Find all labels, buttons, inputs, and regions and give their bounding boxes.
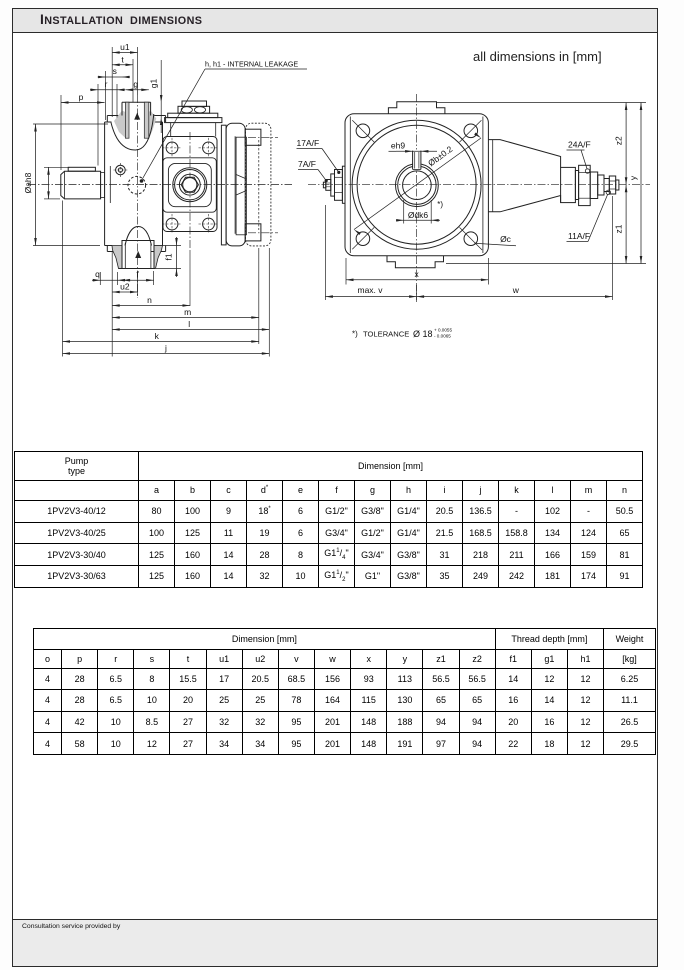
- svg-text:j: j: [164, 343, 167, 353]
- svg-text:z2: z2: [614, 136, 624, 145]
- svg-text:Øc: Øc: [500, 234, 512, 244]
- svg-text:s: s: [113, 66, 117, 76]
- svg-text:Ødk6: Ødk6: [408, 210, 429, 220]
- svg-text:k: k: [155, 331, 160, 341]
- svg-text:+ 0.0055: + 0.0055: [434, 328, 452, 333]
- svg-text:h, h1 - INTERNAL LEAKAGE: h, h1 - INTERNAL LEAKAGE: [205, 60, 298, 69]
- svg-text:eh9: eh9: [391, 141, 405, 151]
- svg-text:l: l: [188, 319, 190, 329]
- svg-text:w: w: [512, 285, 520, 295]
- svg-text:7A/F: 7A/F: [298, 159, 316, 169]
- svg-text:t: t: [121, 54, 124, 64]
- svg-text:g1: g1: [148, 79, 158, 89]
- svg-text:x: x: [414, 269, 419, 279]
- svg-text:Øah8: Øah8: [23, 172, 33, 193]
- svg-text:m: m: [184, 307, 191, 317]
- svg-text:u2: u2: [120, 282, 130, 292]
- svg-text:f1: f1: [164, 253, 174, 260]
- svg-text:max. v: max. v: [357, 285, 383, 295]
- svg-text:z1: z1: [614, 224, 624, 233]
- svg-text:17A/F: 17A/F: [297, 138, 320, 148]
- svg-text:y: y: [628, 175, 638, 180]
- svg-text:*): *): [437, 200, 443, 209]
- svg-text:n: n: [147, 295, 152, 305]
- svg-text:24A/F: 24A/F: [568, 140, 591, 150]
- svg-text:Øb±0.2: Øb±0.2: [426, 144, 455, 169]
- svg-text:- 0.0065: - 0.0065: [434, 334, 451, 339]
- svg-text:*): *): [352, 330, 358, 339]
- svg-text:11A/F: 11A/F: [568, 231, 590, 241]
- svg-text:g: g: [133, 79, 138, 89]
- svg-text:p: p: [79, 92, 84, 102]
- svg-text:q: q: [95, 269, 100, 279]
- svg-text:r: r: [105, 79, 108, 89]
- svg-text:TOLERANCE: TOLERANCE: [363, 330, 409, 339]
- svg-text:u1: u1: [120, 42, 130, 52]
- svg-text:Ø 18: Ø 18: [413, 329, 433, 339]
